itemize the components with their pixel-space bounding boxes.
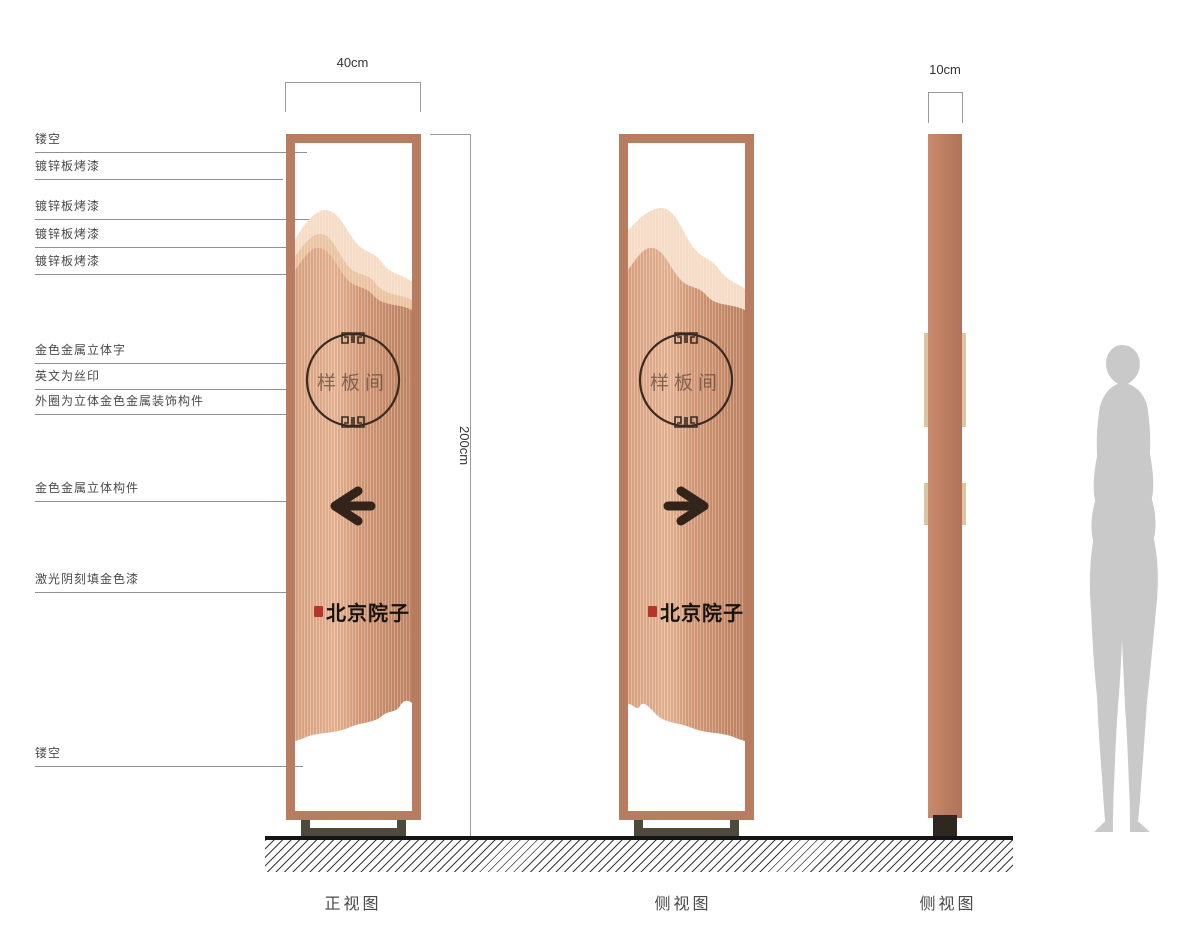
arrow-left-icon [324,484,380,528]
callout-hollow-bottom: 镂空 [35,746,303,767]
side-view-sign [928,134,962,818]
ground-hatch [265,840,1013,872]
dimension-tick [928,92,929,123]
seal-icon [314,606,323,617]
callout-galvanized-paint-3: 镀锌板烤漆 [35,227,292,248]
dimension-tick [285,82,286,112]
view-label-side-2: 侧视图 [903,890,993,914]
front-view-sign [286,134,421,820]
dimension-side-width: 10cm [910,62,980,77]
dimension-height: 200cm [457,426,472,465]
dimension-tick [430,134,471,135]
room-name-text-front: 样板间 [303,368,403,395]
dimension-tick [962,92,963,123]
dimension-front-width: 40cm [285,55,420,70]
dimension-tick [420,82,421,112]
callout-laser-engraved-gold: 激光阴刻填金色漆 [35,572,300,593]
dimension-front-width-line [285,82,421,83]
seal-icon [648,606,657,617]
dimension-height-line [470,134,471,836]
human-silhouette [1072,342,1172,839]
dimension-side-width-line [928,92,963,93]
arrow-right-icon [659,484,715,528]
back-view-sign [619,134,754,820]
callout-galvanized-paint-1: 镀锌板烤漆 [35,159,283,180]
view-label-side-1: 侧视图 [638,890,728,914]
callout-galvanized-paint-4: 镀锌板烤漆 [35,254,293,275]
brand-logo-back: 北京院子 [636,597,756,626]
brand-text: 北京院子 [326,597,410,626]
callout-galvanized-paint-2: 镀锌板烤漆 [35,199,322,220]
view-label-front: 正视图 [308,890,398,914]
callout-outer-ring-ornament: 外圈为立体金色金属装饰构件 [35,394,315,415]
brand-text: 北京院子 [660,597,744,626]
brand-logo-front: 北京院子 [302,597,422,626]
callout-hollow-top: 镂空 [35,132,307,153]
design-sheet: 镂空 镀锌板烤漆 镀锌板烤漆 镀锌板烤漆 镀锌板烤漆 金色金属立体字 英文为丝印… [0,0,1195,927]
room-name-text-back: 样板间 [636,368,736,395]
